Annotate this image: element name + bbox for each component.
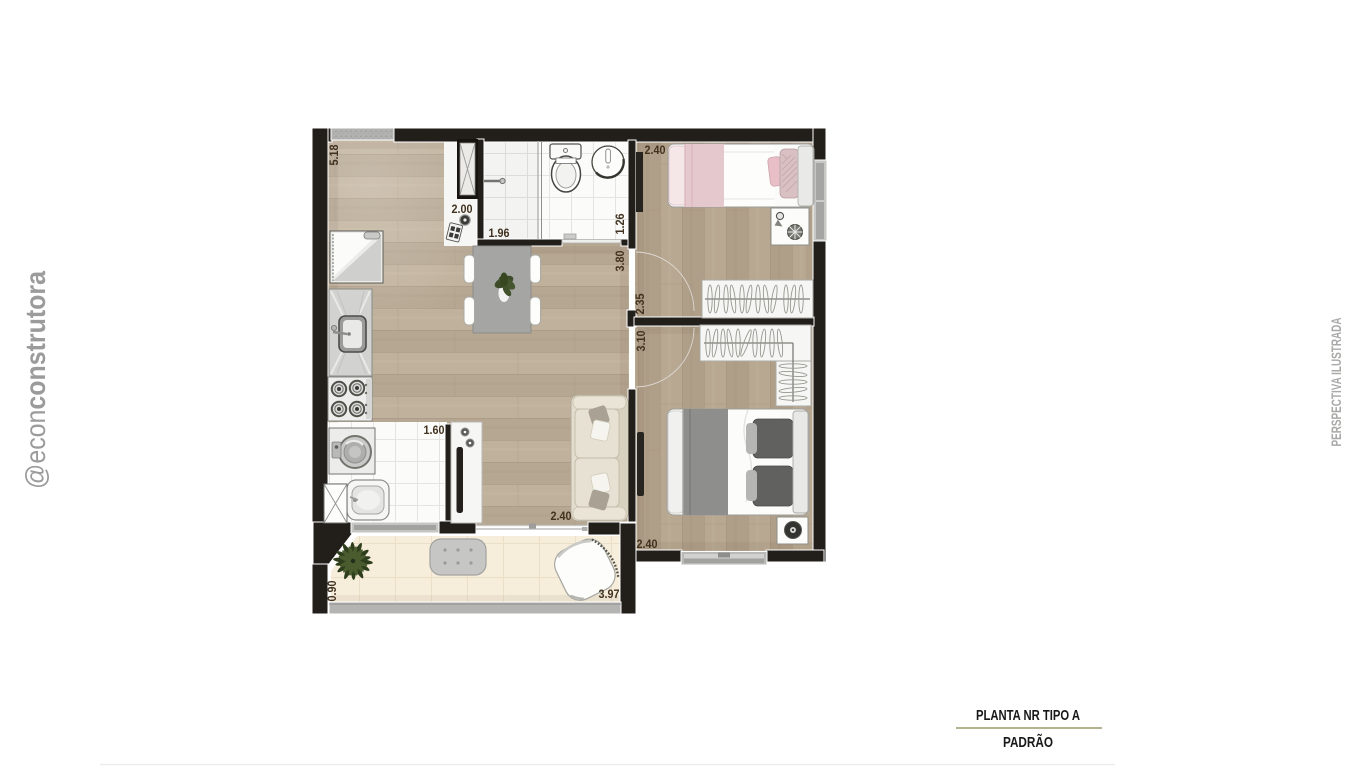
svg-text:5.18: 5.18 (327, 144, 341, 165)
svg-text:2.40: 2.40 (645, 143, 666, 157)
svg-text:3.10: 3.10 (634, 330, 648, 351)
svg-text:0.90: 0.90 (325, 580, 339, 601)
svg-text:2.00: 2.00 (452, 202, 473, 216)
svg-text:PADRÃO: PADRÃO (1003, 733, 1053, 751)
svg-text:PLANTA NR TIPO A: PLANTA NR TIPO A (976, 707, 1080, 724)
svg-text:1.26: 1.26 (613, 213, 627, 234)
svg-text:@econconstrutora: @econconstrutora (20, 271, 51, 489)
svg-text:PERSPECTIVA ILUSTRADA: PERSPECTIVA ILUSTRADA (1328, 318, 1344, 447)
svg-text:2.35: 2.35 (633, 293, 647, 314)
svg-text:2.40: 2.40 (637, 537, 658, 551)
svg-text:1.96: 1.96 (489, 226, 510, 240)
svg-text:3.80: 3.80 (613, 250, 627, 271)
svg-text:3.97: 3.97 (599, 587, 620, 601)
svg-text:2.40: 2.40 (551, 509, 572, 523)
svg-text:1.60: 1.60 (424, 423, 445, 437)
